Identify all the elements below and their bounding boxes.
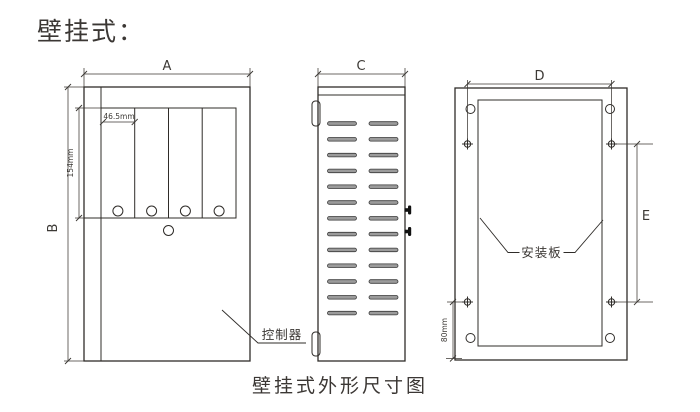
dim-label-b: B bbox=[46, 224, 61, 233]
dim-label-e: E bbox=[642, 209, 650, 224]
figure-caption: 壁挂式外形尺寸图 bbox=[225, 371, 455, 398]
vent-slot-icon bbox=[369, 169, 398, 173]
vent-slot-icon bbox=[369, 248, 398, 252]
screw-hole-icon bbox=[606, 139, 617, 150]
side-view: C bbox=[312, 59, 411, 361]
vent-slots bbox=[328, 122, 399, 315]
vent-slot-icon bbox=[328, 153, 357, 157]
module-hole-icon bbox=[180, 206, 190, 216]
vent-slot-icon bbox=[369, 264, 398, 268]
dim-b-lines bbox=[64, 87, 84, 361]
back-outline bbox=[455, 88, 627, 360]
vent-slot-icon bbox=[369, 296, 398, 300]
dim-d-lines bbox=[468, 80, 612, 140]
center-hole-icon bbox=[164, 226, 174, 236]
vent-slot-icon bbox=[328, 169, 357, 173]
vent-slot-icon bbox=[328, 138, 357, 142]
vent-slot-icon bbox=[369, 201, 398, 205]
vent-slot-icon bbox=[328, 217, 357, 221]
screw-hole-icon bbox=[462, 139, 473, 150]
module-hole-icon bbox=[147, 206, 157, 216]
module-hole-icon bbox=[113, 206, 123, 216]
dim-label-80mm: 80mm bbox=[440, 318, 449, 342]
vent-slot-icon bbox=[328, 248, 357, 252]
vent-slot-icon bbox=[328, 185, 357, 189]
vent-slot-icon bbox=[328, 232, 357, 236]
vent-slot-icon bbox=[328, 311, 357, 315]
technical-drawing: A B 46.5mm 154mm 控制器 bbox=[0, 0, 700, 412]
front-view: A B 46.5mm 154mm 控制器 bbox=[46, 59, 306, 364]
vent-slot-icon bbox=[369, 153, 398, 157]
back-view: D E 80mm 安装板 bbox=[440, 69, 653, 362]
vent-slot-icon bbox=[369, 138, 398, 142]
dim-label-a: A bbox=[163, 59, 172, 74]
vent-slot-icon bbox=[328, 122, 357, 126]
dim-154-lines bbox=[75, 108, 101, 218]
corner-hole-icon bbox=[466, 334, 475, 343]
vent-slot-icon bbox=[328, 201, 357, 205]
vent-slot-icon bbox=[369, 280, 398, 284]
vent-slot-icon bbox=[328, 264, 357, 268]
dim-label-154mm: 154mm bbox=[66, 149, 75, 178]
mount-tab-bottom bbox=[312, 332, 320, 356]
mounting-plate-outline bbox=[478, 100, 602, 346]
module-hole-icon bbox=[214, 206, 224, 216]
dim-label-46-5mm: 46.5mm bbox=[103, 112, 134, 121]
module-dividers bbox=[135, 108, 203, 218]
controller-outline bbox=[84, 87, 250, 361]
vent-slot-icon bbox=[369, 122, 398, 126]
vent-slot-icon bbox=[369, 217, 398, 221]
dim-label-c: C bbox=[356, 59, 365, 74]
screw-hole-icon bbox=[606, 297, 617, 308]
vent-slot-icon bbox=[369, 185, 398, 189]
screw-hole-icon bbox=[462, 297, 473, 308]
vent-slot-icon bbox=[369, 232, 398, 236]
corner-hole-icon bbox=[606, 105, 615, 114]
side-body-outline bbox=[318, 87, 405, 361]
corner-hole-icon bbox=[606, 334, 615, 343]
controller-label: 控制器 bbox=[262, 328, 303, 342]
mounting-plate-label: 安装板 bbox=[521, 245, 562, 260]
vent-slot-icon bbox=[328, 296, 357, 300]
vent-slot-icon bbox=[369, 311, 398, 315]
vent-slot-icon bbox=[328, 280, 357, 284]
dim-label-d: D bbox=[534, 69, 544, 84]
mount-tab-top bbox=[312, 101, 320, 126]
